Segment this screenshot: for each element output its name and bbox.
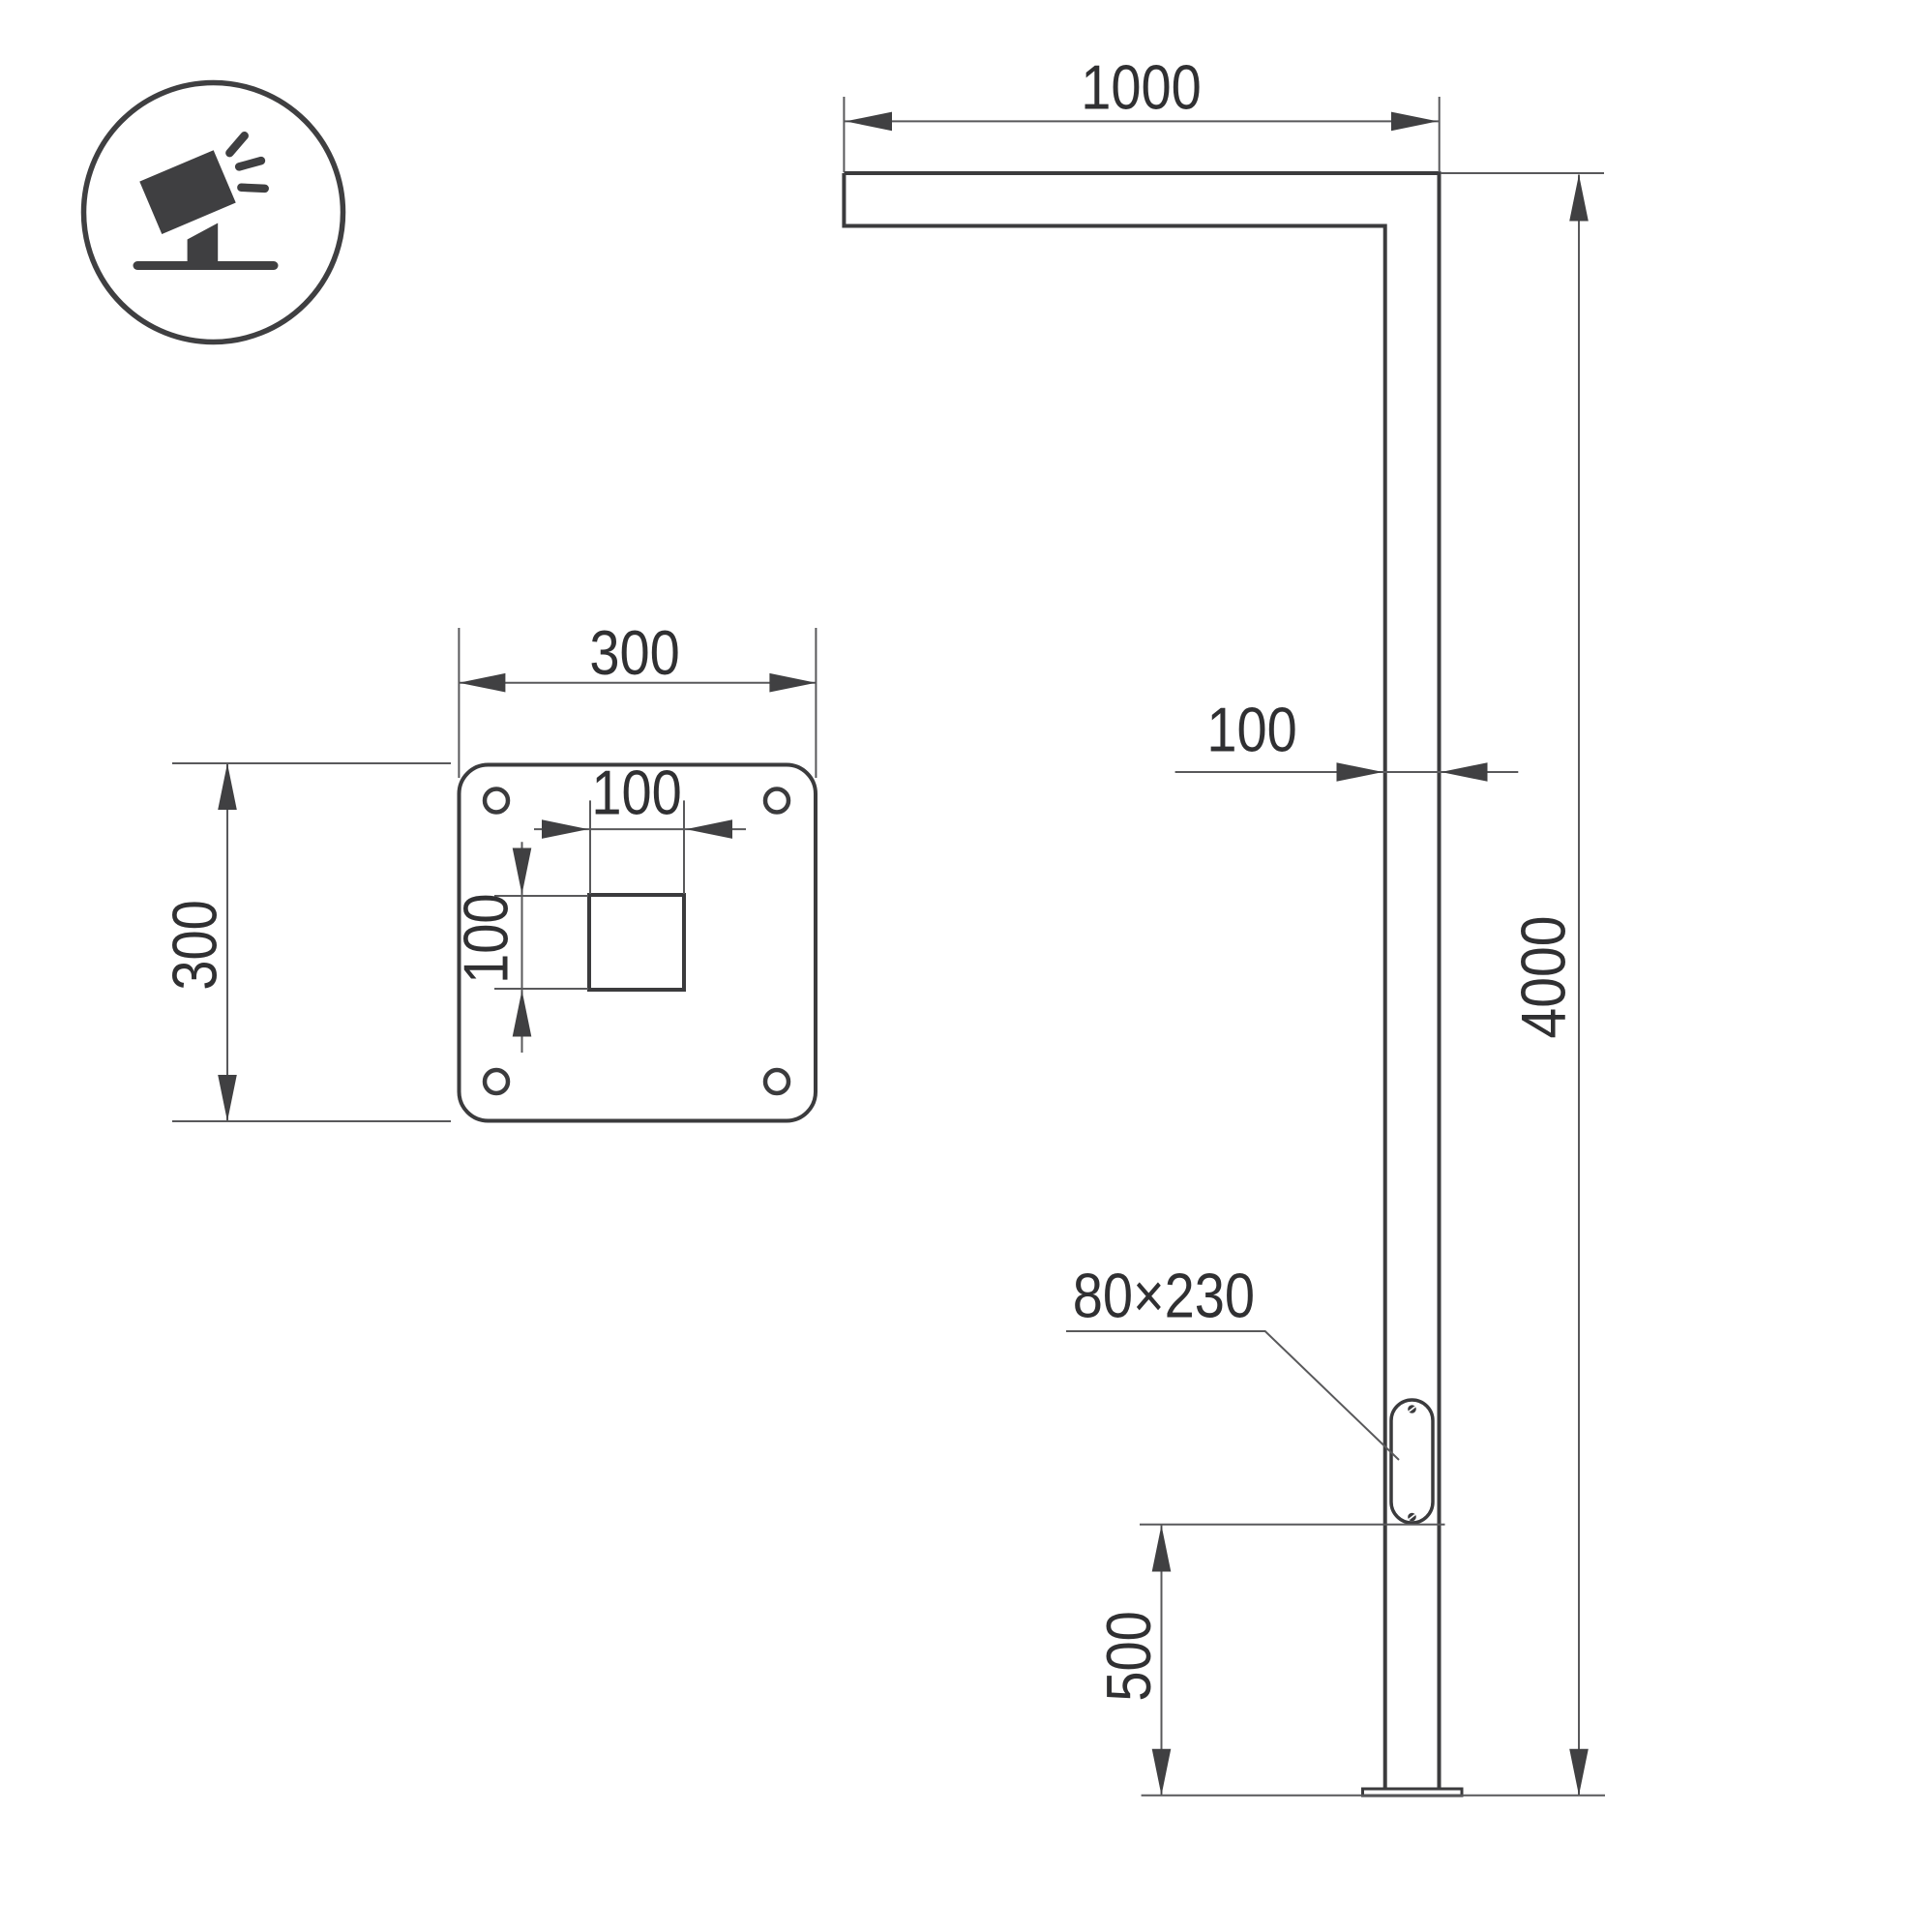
- svg-text:1000: 1000: [1081, 52, 1202, 123]
- svg-text:100: 100: [591, 758, 681, 828]
- svg-text:4000: 4000: [1508, 916, 1578, 1039]
- svg-text:100: 100: [451, 894, 521, 984]
- svg-text:300: 300: [160, 900, 230, 990]
- svg-text:80×230: 80×230: [1073, 1261, 1255, 1331]
- svg-text:100: 100: [1206, 695, 1296, 765]
- svg-text:500: 500: [1093, 1611, 1164, 1701]
- svg-text:300: 300: [589, 617, 679, 688]
